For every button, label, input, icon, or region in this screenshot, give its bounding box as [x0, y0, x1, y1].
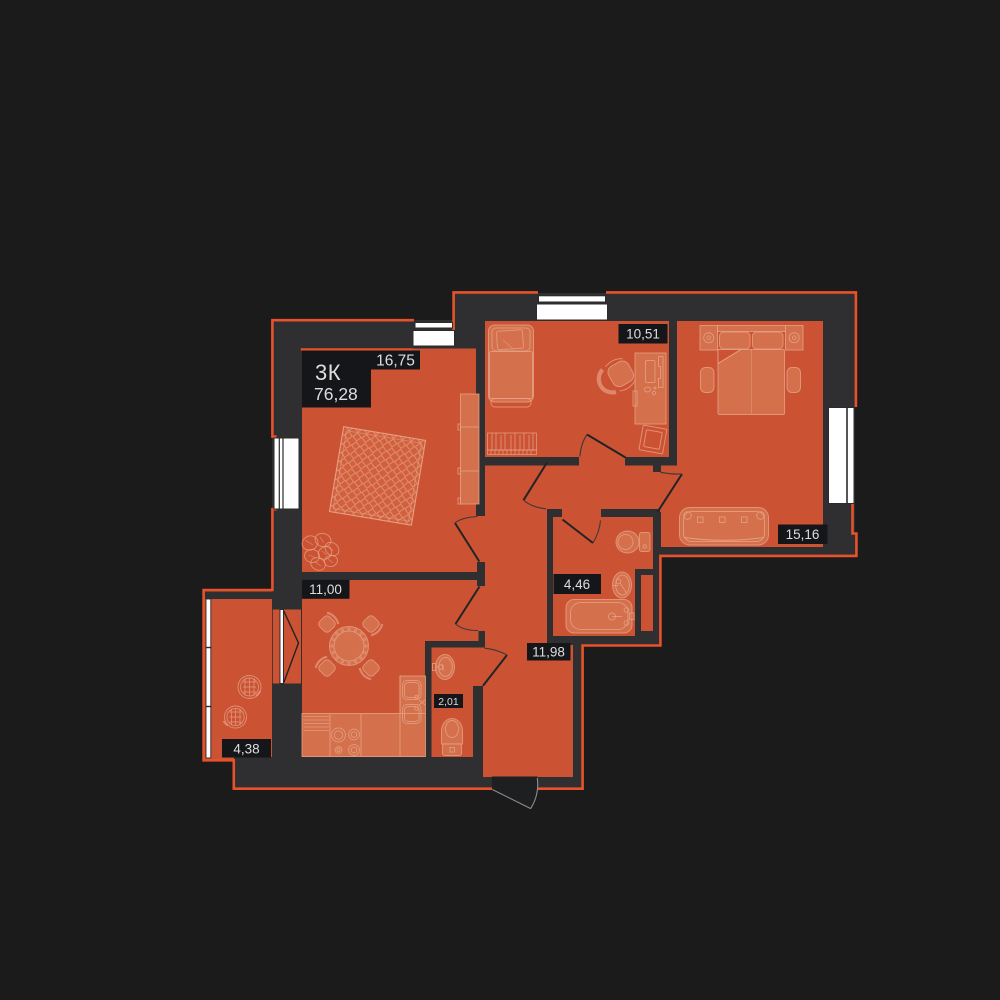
svg-text:3К: 3К [315, 360, 341, 385]
svg-text:16,75: 16,75 [376, 353, 415, 370]
svg-text:10,51: 10,51 [626, 327, 660, 342]
svg-text:4,46: 4,46 [564, 577, 590, 592]
svg-text:11,98: 11,98 [532, 645, 565, 660]
svg-text:2,01: 2,01 [438, 696, 459, 708]
svg-text:11,00: 11,00 [309, 582, 342, 597]
svg-text:4,38: 4,38 [233, 742, 259, 757]
svg-text:15,16: 15,16 [786, 527, 820, 542]
svg-text:76,28: 76,28 [314, 384, 358, 404]
